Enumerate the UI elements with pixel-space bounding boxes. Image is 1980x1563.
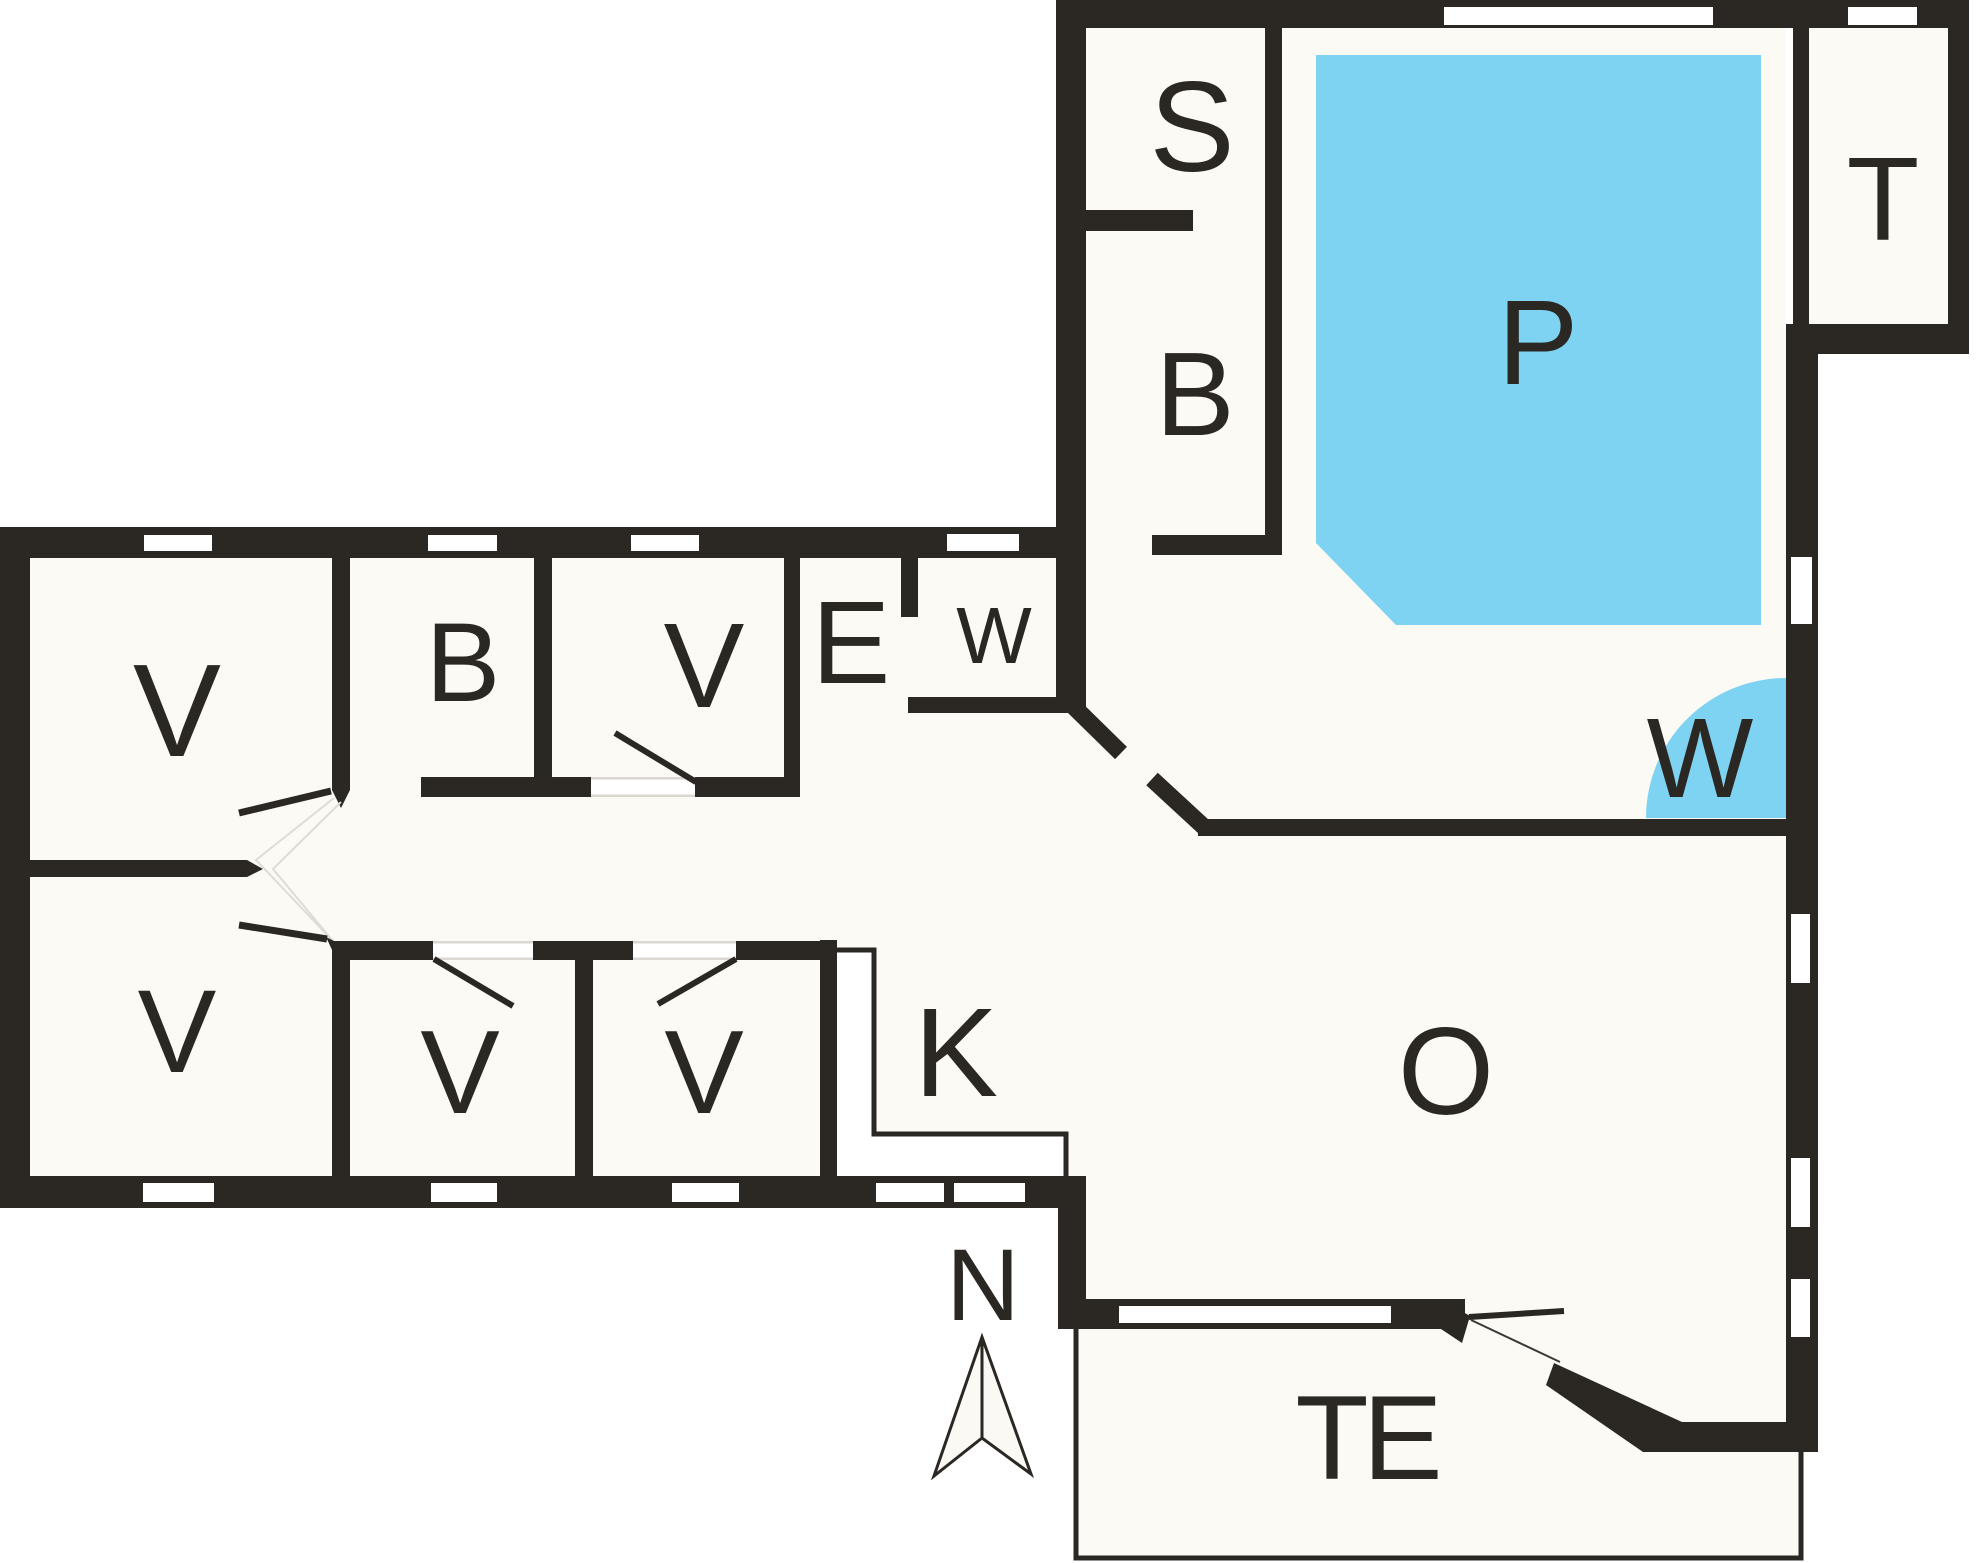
- svg-text:V: V: [664, 1006, 743, 1139]
- svg-text:T: T: [1847, 133, 1920, 266]
- svg-text:E: E: [812, 577, 891, 709]
- svg-text:K: K: [914, 982, 998, 1123]
- svg-text:B: B: [426, 600, 501, 725]
- svg-text:TE: TE: [1295, 1371, 1437, 1505]
- svg-text:W: W: [956, 591, 1032, 680]
- svg-text:V: V: [133, 637, 221, 784]
- svg-text:N: N: [946, 1228, 1020, 1342]
- svg-text:V: V: [664, 597, 745, 733]
- svg-text:O: O: [1398, 1003, 1494, 1141]
- svg-text:B: B: [1155, 328, 1234, 461]
- svg-text:W: W: [1647, 695, 1754, 821]
- svg-text:V: V: [420, 1006, 499, 1139]
- svg-text:P: P: [1498, 274, 1579, 410]
- svg-text:S: S: [1149, 56, 1234, 199]
- svg-text:V: V: [138, 966, 217, 1098]
